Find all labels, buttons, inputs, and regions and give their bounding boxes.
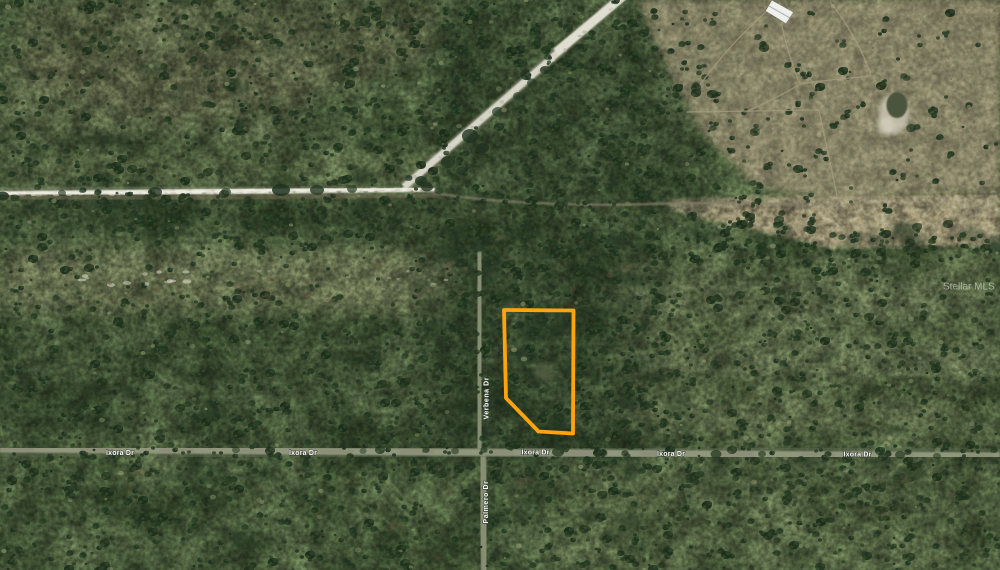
svg-text:Stellar MLS: Stellar MLS: [943, 282, 995, 293]
svg-text:Ixora Dr: Ixora Dr: [522, 450, 550, 457]
svg-text:Palmero Dr: Palmero Dr: [483, 481, 490, 524]
svg-text:Ixora Dr: Ixora Dr: [657, 451, 685, 458]
svg-text:Ixora Dr: Ixora Dr: [844, 452, 872, 459]
svg-text:Ixora Dr: Ixora Dr: [106, 450, 134, 457]
svg-text:Ixora Dr: Ixora Dr: [289, 450, 317, 457]
svg-text:Verbena Dr: Verbena Dr: [484, 377, 491, 419]
